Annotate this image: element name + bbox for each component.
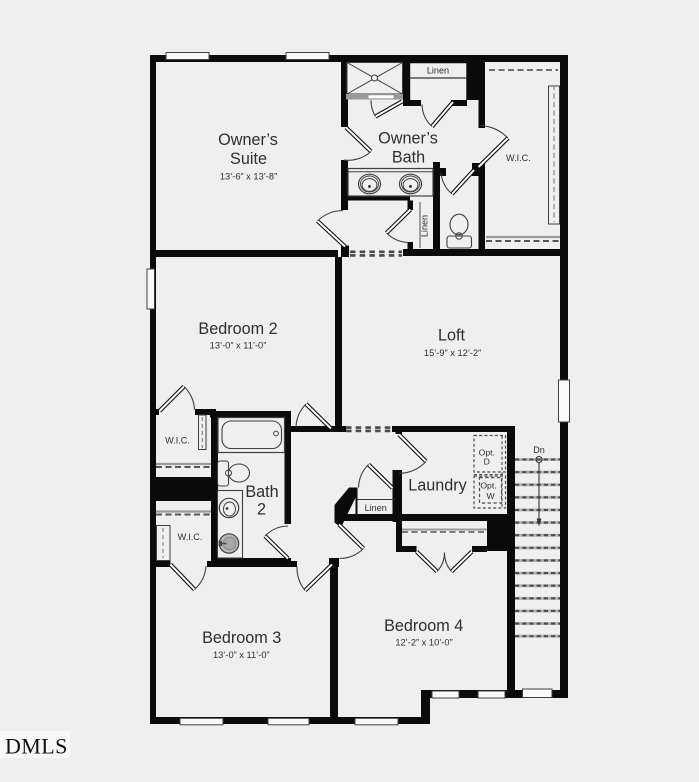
svg-text:Laundry: Laundry — [408, 477, 467, 495]
svg-text:Linen: Linen — [419, 215, 429, 237]
svg-text:Owner’s: Owner’s — [378, 129, 438, 147]
svg-text:D: D — [484, 456, 490, 466]
svg-text:Bath: Bath — [392, 148, 425, 166]
svg-text:2: 2 — [257, 500, 266, 518]
svg-text:12’-2” x 10’-0”: 12’-2” x 10’-0” — [395, 638, 452, 648]
svg-text:Linen: Linen — [427, 66, 449, 76]
svg-text:Owner’s: Owner’s — [218, 131, 278, 149]
svg-text:Dn: Dn — [533, 445, 545, 455]
svg-text:DMLS: DMLS — [5, 734, 68, 759]
svg-text:Bedroom 4: Bedroom 4 — [384, 617, 463, 635]
svg-text:Bath: Bath — [245, 483, 278, 501]
svg-text:W.I.C.: W.I.C. — [165, 436, 190, 446]
svg-text:Loft: Loft — [438, 327, 466, 345]
svg-text:13’-0” x 11’-0”: 13’-0” x 11’-0” — [213, 650, 270, 660]
svg-text:Bedroom 3: Bedroom 3 — [202, 629, 281, 647]
svg-text:W.I.C.: W.I.C. — [178, 532, 203, 542]
svg-text:Suite: Suite — [230, 150, 267, 168]
svg-text:W: W — [486, 491, 495, 501]
svg-text:13’-0” x 11’-0”: 13’-0” x 11’-0” — [210, 341, 267, 351]
svg-text:Bedroom 2: Bedroom 2 — [198, 320, 277, 338]
svg-text:15’-9” x 12’-2”: 15’-9” x 12’-2” — [424, 348, 481, 358]
svg-text:Linen: Linen — [365, 503, 387, 513]
svg-text:Opt.: Opt. — [480, 481, 496, 491]
svg-text:W.I.C.: W.I.C. — [506, 153, 531, 163]
svg-text:13’-6” x 13’-8”: 13’-6” x 13’-8” — [220, 172, 277, 182]
